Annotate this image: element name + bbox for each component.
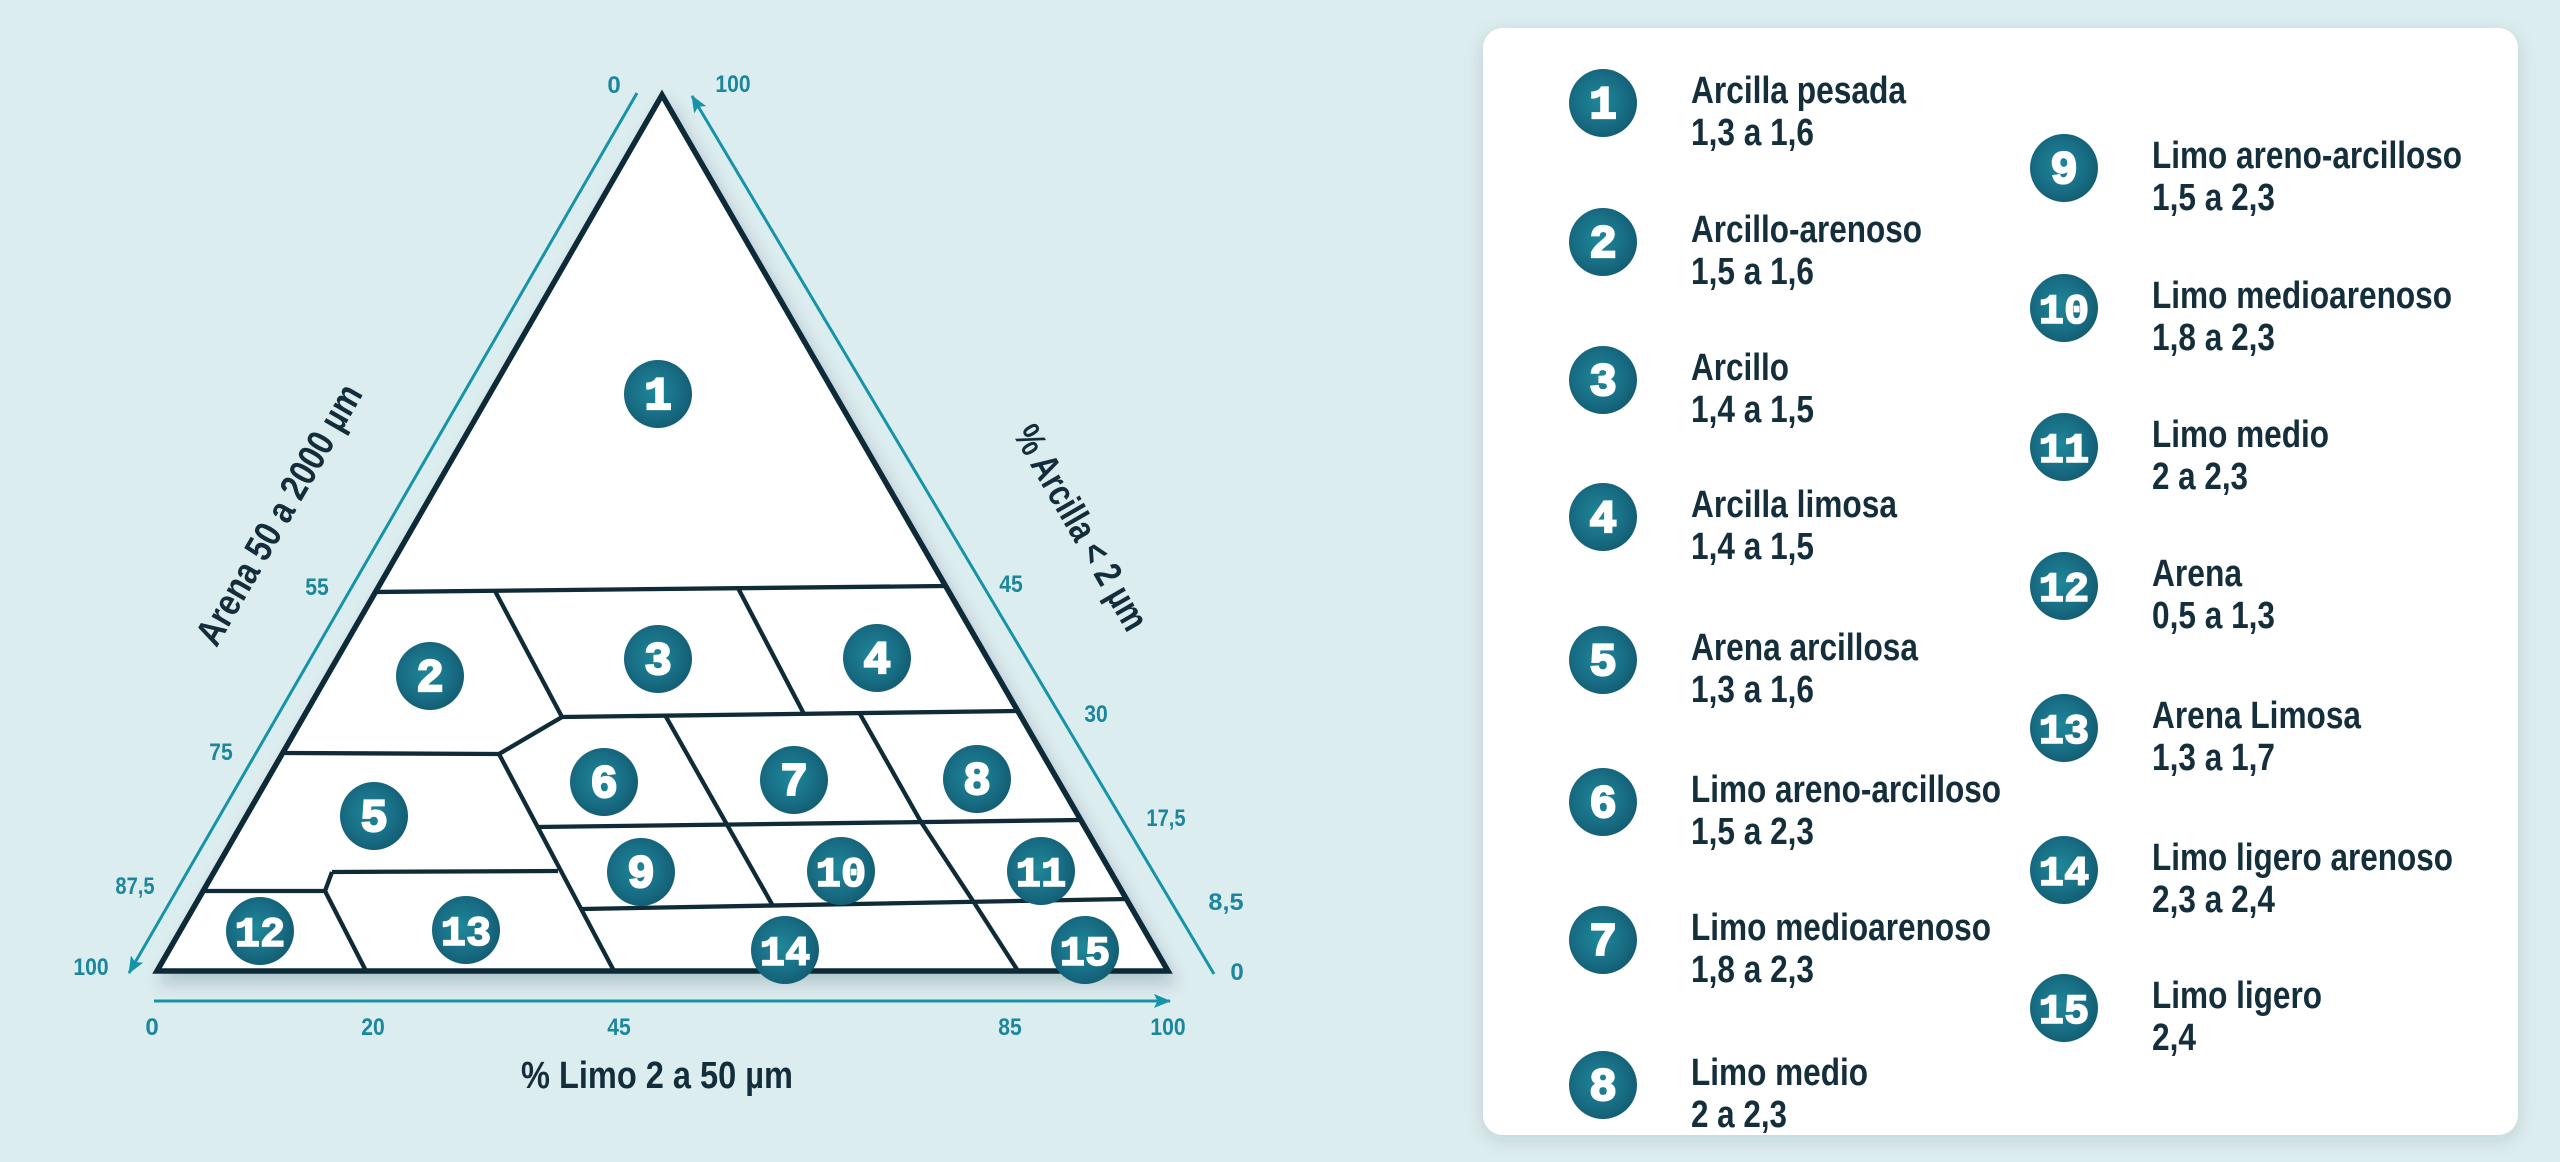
svg-text:1,5 a 2,3: 1,5 a 2,3	[2152, 177, 2275, 219]
svg-text:11: 11	[2039, 427, 2089, 475]
svg-text:Limo medioarenoso: Limo medioarenoso	[1691, 907, 1991, 949]
svg-text:7: 7	[780, 757, 808, 809]
svg-text:14: 14	[2039, 850, 2089, 898]
svg-text:14: 14	[760, 930, 810, 978]
svg-text:% Limo 2 a 50 µm: % Limo 2 a 50 µm	[521, 1055, 793, 1097]
svg-text:1,5 a 1,6: 1,5 a 1,6	[1691, 251, 1814, 293]
svg-text:0: 0	[145, 1014, 158, 1041]
svg-text:Limo medioarenoso: Limo medioarenoso	[2152, 275, 2452, 317]
svg-text:100: 100	[73, 954, 108, 981]
svg-text:Arcilla pesada: Arcilla pesada	[1691, 70, 1907, 112]
svg-text:13: 13	[2039, 708, 2089, 756]
svg-text:1,4 a 1,5: 1,4 a 1,5	[1691, 389, 1814, 431]
svg-text:Arena arcillosa: Arena arcillosa	[1691, 627, 1919, 669]
svg-text:55: 55	[305, 574, 329, 601]
svg-text:6: 6	[1589, 779, 1617, 831]
svg-text:1,8 a 2,3: 1,8 a 2,3	[2152, 317, 2275, 359]
svg-text:2 a 2,3: 2 a 2,3	[2152, 456, 2248, 498]
svg-text:10: 10	[2039, 288, 2089, 336]
svg-text:9: 9	[2050, 145, 2078, 197]
svg-text:1,4 a 1,5: 1,4 a 1,5	[1691, 526, 1814, 568]
svg-text:10: 10	[816, 851, 866, 899]
svg-text:15: 15	[2039, 988, 2089, 1036]
svg-text:8,5: 8,5	[1208, 889, 1243, 916]
svg-text:5: 5	[1589, 637, 1617, 689]
svg-text:Arena Limosa: Arena Limosa	[2152, 695, 2362, 737]
svg-text:2,3 a 2,4: 2,3 a 2,4	[2152, 879, 2275, 921]
svg-text:Arcillo: Arcillo	[1691, 347, 1789, 389]
svg-text:12: 12	[235, 911, 285, 959]
svg-text:1,3 a 1,6: 1,3 a 1,6	[1691, 112, 1814, 154]
svg-text:1,8 a 2,3: 1,8 a 2,3	[1691, 949, 1814, 991]
svg-text:Limo ligero: Limo ligero	[2152, 975, 2322, 1017]
svg-text:Limo medio: Limo medio	[1691, 1052, 1868, 1094]
svg-text:Arcilla limosa: Arcilla limosa	[1691, 484, 1898, 526]
svg-text:8: 8	[963, 756, 991, 808]
svg-text:11: 11	[1016, 851, 1066, 899]
svg-text:87,5: 87,5	[115, 873, 154, 900]
svg-text:13: 13	[441, 910, 491, 958]
svg-text:Limo medio: Limo medio	[2152, 414, 2329, 456]
svg-text:0,5 a 1,3: 0,5 a 1,3	[2152, 595, 2275, 637]
svg-text:2: 2	[416, 653, 444, 705]
svg-text:100: 100	[1150, 1014, 1185, 1041]
svg-text:2 a 2,3: 2 a 2,3	[1691, 1094, 1787, 1136]
svg-text:100: 100	[715, 71, 750, 98]
svg-text:5: 5	[360, 793, 388, 845]
svg-text:3: 3	[644, 636, 672, 688]
svg-text:1: 1	[1589, 80, 1617, 132]
svg-text:0: 0	[607, 72, 620, 99]
svg-text:8: 8	[1589, 1062, 1617, 1114]
svg-text:1: 1	[644, 371, 672, 423]
svg-text:Arena: Arena	[2152, 553, 2243, 595]
svg-text:20: 20	[361, 1014, 385, 1041]
svg-text:30: 30	[1084, 701, 1108, 728]
svg-text:Limo areno-arcilloso: Limo areno-arcilloso	[1691, 769, 2001, 811]
svg-text:Limo ligero arenoso: Limo ligero arenoso	[2152, 837, 2453, 879]
svg-text:4: 4	[863, 635, 891, 687]
svg-text:1,3 a 1,6: 1,3 a 1,6	[1691, 669, 1814, 711]
svg-text:45: 45	[999, 571, 1023, 598]
svg-text:6: 6	[590, 759, 618, 811]
svg-text:45: 45	[607, 1014, 631, 1041]
svg-text:2: 2	[1589, 219, 1617, 271]
svg-text:Limo areno-arcilloso: Limo areno-arcilloso	[2152, 135, 2462, 177]
svg-text:12: 12	[2039, 566, 2089, 614]
svg-text:85: 85	[998, 1014, 1022, 1041]
svg-text:17,5: 17,5	[1146, 805, 1185, 832]
svg-text:9: 9	[627, 849, 655, 901]
svg-text:1,5 a 2,3: 1,5 a 2,3	[1691, 811, 1814, 853]
svg-text:4: 4	[1589, 494, 1617, 546]
svg-text:2,4: 2,4	[2152, 1017, 2196, 1059]
svg-text:7: 7	[1589, 917, 1617, 969]
svg-text:3: 3	[1589, 357, 1617, 409]
svg-text:1,3 a 1,7: 1,3 a 1,7	[2152, 737, 2275, 779]
svg-text:15: 15	[1060, 930, 1110, 978]
svg-text:0: 0	[1230, 959, 1243, 986]
svg-text:Arcillo-arenoso: Arcillo-arenoso	[1691, 209, 1922, 251]
svg-text:75: 75	[209, 739, 233, 766]
